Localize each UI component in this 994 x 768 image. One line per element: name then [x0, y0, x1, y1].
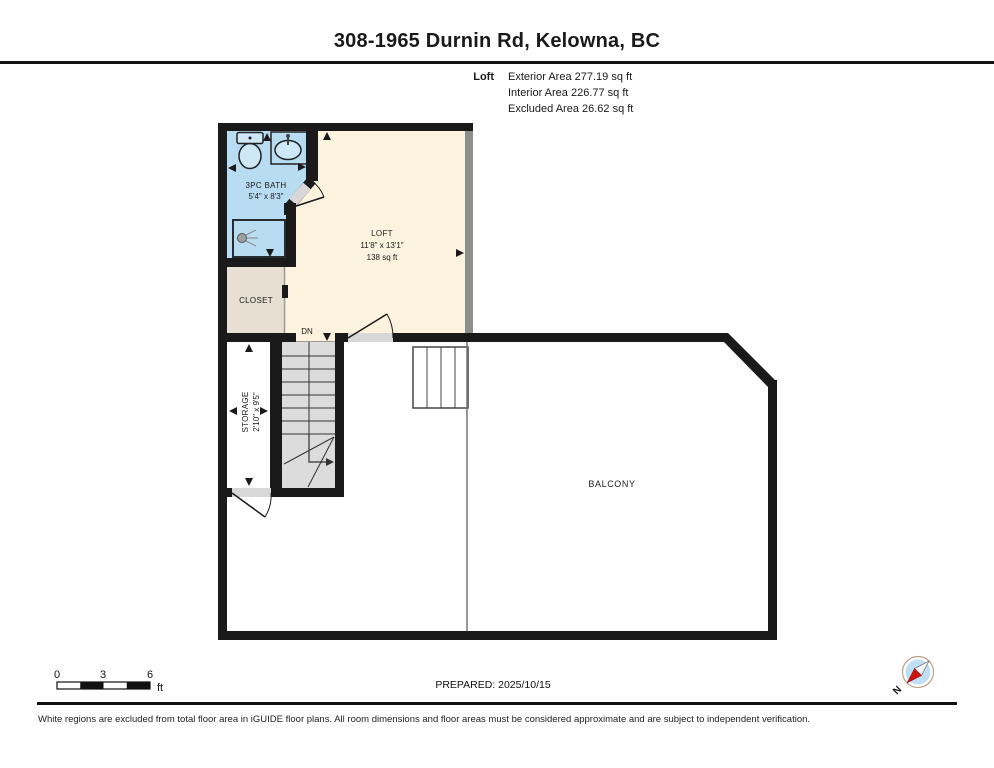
scale-bar: 0 3 6 ft — [54, 669, 163, 694]
bath-room-name: 3PC BATH — [246, 181, 287, 190]
scale-tick-3: 3 — [100, 669, 106, 681]
loft-room-dimensions: 11'8" x 13'1" — [360, 241, 403, 250]
stairs-dn-label: DN — [301, 327, 313, 336]
storage-door-gap — [232, 488, 271, 497]
balcony-room-name: BALCONY — [588, 479, 635, 489]
loft-room-area: 138 sq ft — [367, 253, 398, 262]
loft-room-name: LOFT — [371, 229, 393, 238]
footer-divider — [37, 702, 957, 705]
stairs — [282, 342, 335, 489]
storage-room-dimensions: 2'10" x 9'5" — [252, 392, 261, 432]
loft-right-wall — [465, 131, 473, 342]
compass-icon: N — [891, 657, 933, 698]
floor-plan: 3PC BATH 5'4" x 8'3" LOFT 11'8" x 13'1" … — [0, 0, 994, 768]
scale-tick-0: 0 — [54, 669, 60, 681]
scale-tick-6: 6 — [147, 669, 153, 681]
prepared-label: PREPARED: 2025/10/15 — [435, 679, 551, 691]
storage-room-name: STORAGE — [241, 391, 250, 432]
toilet-icon — [237, 133, 263, 169]
shower-icon — [233, 220, 285, 257]
bath-door-hinge-block — [284, 203, 296, 215]
scale-unit: ft — [157, 682, 163, 694]
closet-room-name: CLOSET — [239, 296, 273, 305]
bath-room-dimensions: 5'4" x 8'3" — [249, 192, 284, 201]
compass-north-label: N — [891, 684, 904, 697]
footer-disclaimer: White regions are excluded from total fl… — [38, 714, 968, 725]
lower-stair-flight — [413, 347, 468, 408]
